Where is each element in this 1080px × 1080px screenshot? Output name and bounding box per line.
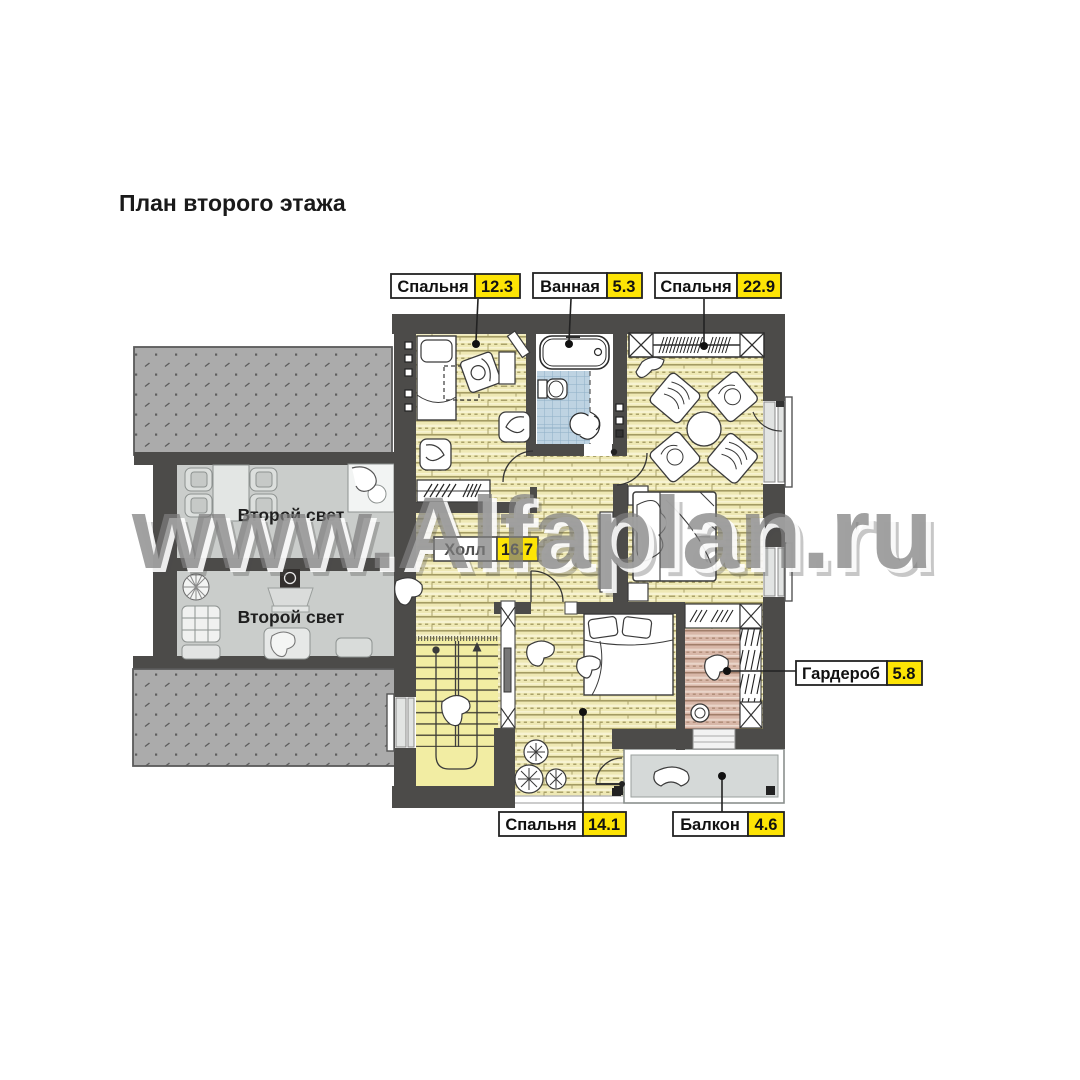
svg-text:4.6: 4.6 (755, 816, 778, 834)
svg-text:Спальня: Спальня (505, 816, 576, 834)
svg-text:www.Alfaplan.ru: www.Alfaplan.ru (131, 476, 933, 590)
svg-text:Второй свет: Второй свет (238, 607, 345, 627)
svg-text:Балкон: Балкон (680, 816, 740, 834)
svg-text:5.8: 5.8 (893, 665, 916, 683)
svg-text:Гардероб: Гардероб (802, 665, 880, 683)
svg-text:Ванная: Ванная (540, 278, 600, 296)
svg-text:22.9: 22.9 (743, 278, 775, 296)
svg-text:14.1: 14.1 (588, 816, 620, 834)
svg-text:Спальня: Спальня (397, 278, 468, 296)
svg-text:План второго этажа: План второго этажа (119, 190, 346, 216)
svg-text:5.3: 5.3 (613, 278, 636, 296)
svg-text:12.3: 12.3 (481, 278, 513, 296)
svg-text:Спальня: Спальня (660, 278, 731, 296)
